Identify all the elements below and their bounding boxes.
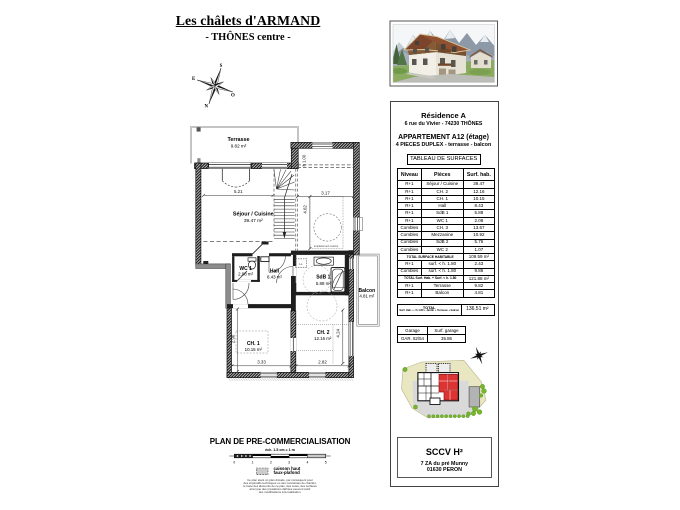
- svg-text:N: N: [205, 105, 209, 110]
- svg-text:8.43 m²: 8.43 m²: [267, 274, 282, 279]
- svg-text:2.08 m²: 2.08 m²: [238, 271, 253, 276]
- svg-text:E: E: [192, 77, 196, 82]
- svg-text:0: 0: [233, 460, 235, 464]
- svg-text:h 1.00: h 1.00: [301, 154, 306, 166]
- svg-text:2.90: 2.90: [231, 334, 236, 343]
- svg-text:10.15 m²: 10.15 m²: [245, 347, 263, 352]
- svg-text:O: O: [231, 94, 235, 99]
- svg-text:4.62: 4.62: [302, 205, 307, 214]
- svg-text:9.82 m²: 9.82 m²: [231, 143, 247, 148]
- svg-text:CH. 1: CH. 1: [247, 341, 260, 347]
- svg-text:39.47 m²: 39.47 m²: [244, 218, 263, 224]
- svg-text:2: 2: [270, 460, 272, 464]
- svg-text:LL: LL: [299, 262, 303, 266]
- svg-text:2.82: 2.82: [318, 360, 327, 365]
- svg-text:4.81 m²: 4.81 m²: [359, 294, 374, 299]
- svg-text:5.21: 5.21: [234, 189, 243, 194]
- svg-text:S: S: [220, 64, 223, 69]
- svg-text:Terrasse: Terrasse: [227, 137, 249, 143]
- svg-text:1: 1: [252, 460, 254, 464]
- svg-text:12.16 m²: 12.16 m²: [314, 336, 332, 341]
- svg-text:5: 5: [325, 460, 327, 464]
- svg-text:SdB 1: SdB 1: [316, 274, 330, 280]
- svg-text:3.33: 3.33: [257, 360, 266, 365]
- svg-text:3.17: 3.17: [321, 190, 330, 195]
- svg-text:4: 4: [306, 460, 308, 464]
- svg-text:Séjour / Cuisine: Séjour / Cuisine: [233, 211, 274, 217]
- svg-text:4.24: 4.24: [336, 328, 341, 337]
- svg-text:3: 3: [288, 460, 290, 464]
- svg-text:emplacement cuisine: emplacement cuisine: [314, 244, 339, 248]
- svg-text:5.88 m²: 5.88 m²: [316, 281, 331, 286]
